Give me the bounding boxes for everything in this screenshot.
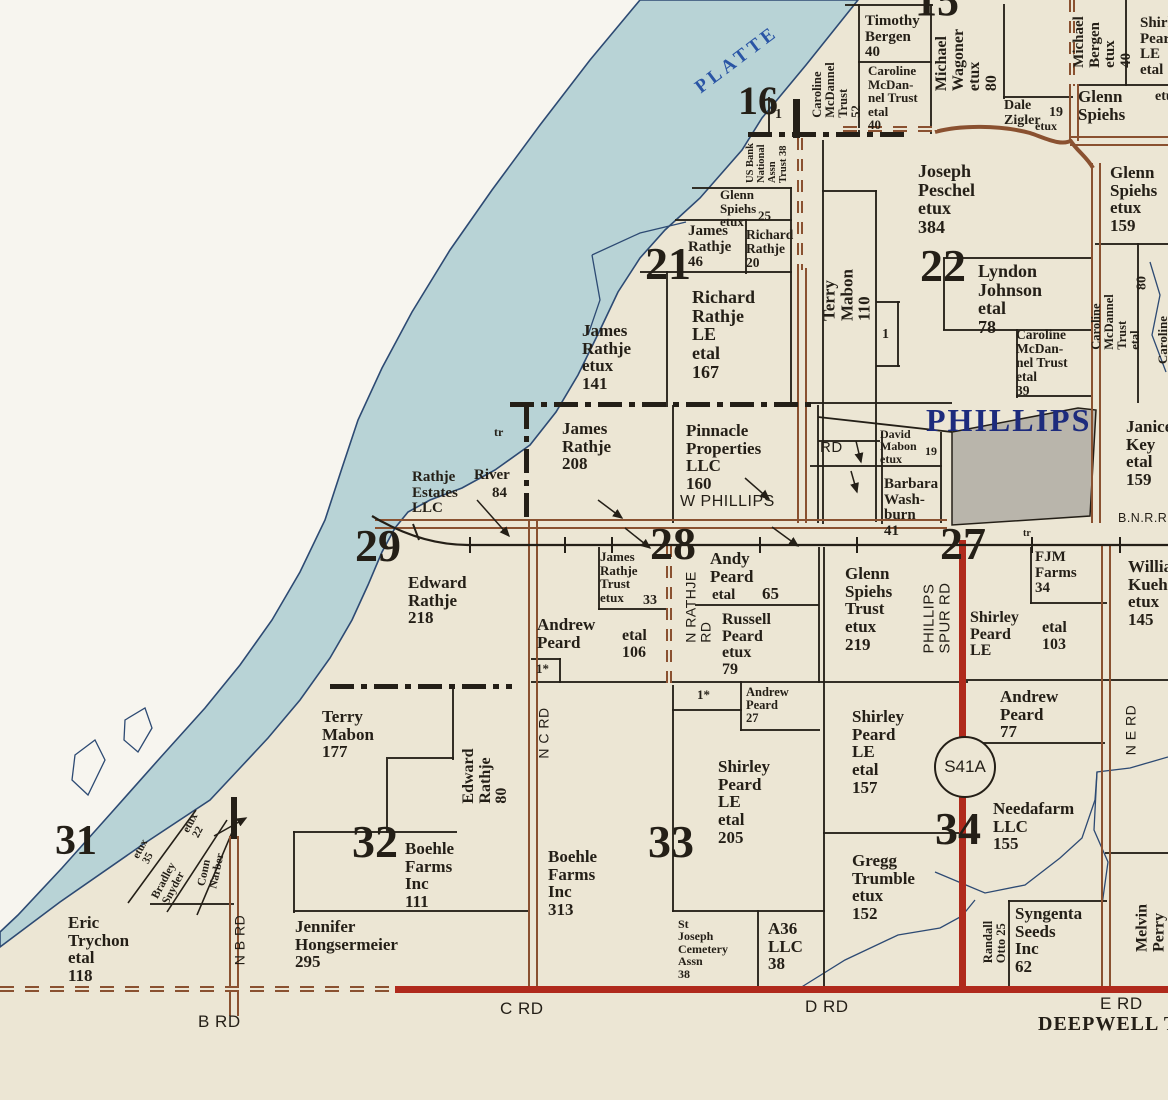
river-island <box>72 740 105 795</box>
map-label: Michael Wagoner etux 80 <box>934 29 1001 91</box>
parcel-line <box>666 271 668 407</box>
map-label: 33 <box>643 594 657 609</box>
section-number-28: 28 <box>650 520 696 568</box>
parcel-line <box>150 903 234 905</box>
map-label: etal <box>712 588 735 604</box>
section-number-15: 15 <box>915 0 959 24</box>
map-label: N C RD <box>537 707 552 758</box>
map-label: Barbara Wash- burn 41 <box>884 477 938 539</box>
parcel-line <box>672 910 825 912</box>
map-label: Rathje Estates LLC <box>412 470 458 517</box>
section-number-33: 33 <box>648 818 694 866</box>
map-label: Caroline McDan- nel Trust etal 39 <box>1016 328 1068 398</box>
section-number-22: 22 <box>920 242 966 290</box>
map-label: 1* <box>697 688 710 702</box>
township-boundary-bar <box>231 797 237 839</box>
map-label: etux <box>1155 90 1168 105</box>
parcel-line <box>388 757 454 759</box>
map-label: 19 <box>925 445 937 457</box>
map-label: 1 <box>882 328 889 343</box>
map-label: Terry Mabon 110 <box>820 269 873 321</box>
parcel-line <box>293 831 295 913</box>
page-margin <box>0 0 640 932</box>
section-number-31: 31 <box>55 820 97 864</box>
map-label: Boehle Farms Inc 313 <box>548 848 597 919</box>
parcel-line <box>963 679 1168 681</box>
map-label: Joseph Peschel etux 384 <box>918 162 975 237</box>
map-label: FJM Farms 34 <box>1035 550 1077 597</box>
map-label: Lyndon Johnson etal 78 <box>978 262 1042 337</box>
map-label: Melvin Perry <box>1134 904 1167 952</box>
map-label: Randall Otto 25 <box>982 921 1008 963</box>
township-boundary <box>524 405 529 523</box>
map-label: PHILLIPS SPUR RD <box>921 582 952 653</box>
map-label: 25 <box>758 209 771 223</box>
map-label: Edward Rathje 80 <box>461 748 511 803</box>
parcel-line <box>790 187 792 405</box>
map-label: N E RD <box>1124 705 1139 755</box>
map-label: Shirley Peard LE etal 205 <box>718 758 770 846</box>
map-label: William Kuehner etux 145 <box>1128 558 1168 629</box>
map-label: Pinnacle Properties LLC 160 <box>686 422 761 493</box>
parcel-line <box>757 910 759 993</box>
parcel-line <box>559 658 561 683</box>
map-label: N RATHJE RD <box>683 571 712 642</box>
map-label: 80 <box>1136 276 1151 290</box>
parcel-line <box>740 729 820 731</box>
map-label: Caroline McDan- nel Trust etal 40 <box>868 64 918 132</box>
parcel-line <box>672 685 674 912</box>
plat-map: S41A PLATTEPHILLIPSB.N.R.R.1516212227282… <box>0 0 1168 1100</box>
map-label: Caroline McDannel Trust 52 <box>811 62 863 118</box>
map-label: tr <box>494 426 503 438</box>
section-number-16: 16 <box>738 80 778 122</box>
map-label: Glenn Spiehs <box>1078 88 1125 123</box>
parcel-line <box>875 190 877 522</box>
parcel-line <box>1030 547 1032 604</box>
parcel-line <box>810 465 942 467</box>
parcel-line <box>822 190 877 192</box>
map-label: 84 <box>492 486 507 502</box>
parcel-line <box>672 405 674 523</box>
map-label: Russell Peard etux 79 <box>722 612 771 679</box>
parcel-line <box>823 547 825 993</box>
map-label: Timothy Bergen 40 <box>865 14 920 61</box>
map-label: etal 106 <box>622 628 647 661</box>
map-label: David Mabon etux <box>880 428 917 465</box>
parcel-line <box>1105 852 1168 854</box>
road-red <box>395 986 1168 993</box>
map-label: Glenn Spiehs etux 159 <box>1110 164 1157 235</box>
section-number-21: 21 <box>645 240 691 288</box>
section-number-32: 32 <box>352 818 398 866</box>
map-label: Shirley Peard LE etal 157 <box>852 708 904 796</box>
map-label: Boehle Farms Inc 111 <box>405 840 454 911</box>
map-label: River <box>474 468 510 484</box>
township-boundary <box>510 402 818 407</box>
town-name-phillips: PHILLIPS <box>926 404 1091 437</box>
road-label-b-rd: B RD <box>198 1013 241 1031</box>
map-label: Andrew Peard 77 <box>1000 688 1058 741</box>
map-label: Eric Trychon etal 118 <box>68 914 129 985</box>
section-number-27: 27 <box>940 520 986 568</box>
road-brown <box>797 138 803 270</box>
map-label: Andrew Peard 27 <box>746 686 789 725</box>
parcel-line <box>1030 602 1107 604</box>
map-label: Gregg Trumble etux 152 <box>852 852 915 923</box>
map-label: N B RD <box>233 915 248 965</box>
parcel-line <box>598 608 670 610</box>
river-island <box>124 708 152 752</box>
road-label-e-rd: E RD <box>1100 995 1143 1013</box>
road-brown <box>1070 136 1168 146</box>
map-label: Shirley Peard LE <box>970 610 1019 660</box>
map-label: Terry Mabon 177 <box>322 708 374 761</box>
parcel-line <box>1008 900 1107 902</box>
map-label: Caroline McDannel Trust etal <box>1090 294 1142 350</box>
map-label: Janice Key etal 159 <box>1126 418 1168 489</box>
section-number-34: 34 <box>935 805 981 853</box>
map-label: Caroline <box>1156 316 1168 364</box>
map-label: A36 LLC 38 <box>768 920 803 973</box>
parcel-line <box>452 685 454 760</box>
parcel-line <box>940 432 942 523</box>
parcel-line <box>1078 84 1168 86</box>
map-label: Andrew Peard <box>537 616 595 651</box>
parcel-line <box>740 681 742 731</box>
parcel-line <box>531 681 968 683</box>
map-label: Bradley Snyder <box>150 861 189 907</box>
road-label-c-rd: C RD <box>500 1000 544 1018</box>
parcel-line <box>672 709 742 711</box>
map-label: Andy Peard <box>710 550 753 585</box>
parcel-line <box>1003 4 1005 99</box>
map-label: 1* <box>536 662 549 676</box>
map-label: 1 <box>775 108 782 123</box>
map-label: James Rathje etux 141 <box>582 322 631 393</box>
map-label: W PHILLIPS <box>680 494 775 511</box>
map-label: Jennifer Hongsermeier 295 <box>295 918 398 971</box>
map-label: James Rathje 208 <box>562 420 611 473</box>
map-label: Syngenta Seeds Inc 62 <box>1015 905 1082 976</box>
map-label: Glenn Spiehs Trust etux 219 <box>845 565 892 653</box>
map-label: Michael Bergen etux 40 <box>1072 16 1134 68</box>
map-label: James Rathje Trust etux <box>600 550 638 604</box>
parcel-line <box>817 405 819 523</box>
map-label: etux 22 <box>181 812 211 841</box>
map-label: etal 103 <box>1042 620 1067 653</box>
parcel-line <box>695 604 819 606</box>
township-boundary <box>330 684 512 689</box>
road-brown <box>1101 545 1111 988</box>
map-label: Shirley Peard LE etal <box>1140 16 1168 78</box>
road-brown <box>0 986 397 992</box>
map-label: 65 <box>762 585 779 603</box>
section-number-29: 29 <box>355 522 401 570</box>
map-label: Richard Rathje 20 <box>746 228 793 270</box>
railroad-label: B.N.R.R. <box>1118 512 1168 525</box>
township-boundary <box>748 132 906 137</box>
map-label: US Bank National Assn Trust 38 <box>746 143 790 183</box>
map-label: Needafarm LLC 155 <box>993 800 1074 853</box>
highway-shield-s41a: S41A <box>934 736 996 798</box>
parcel-line <box>1095 243 1168 245</box>
map-label: Conn Narber <box>197 850 228 890</box>
township-label: DEEPWELL TW <box>1038 1014 1168 1035</box>
road-label-d-rd: D RD <box>805 998 849 1016</box>
road-brown <box>797 268 807 523</box>
map-label: Edward Rathje 218 <box>408 574 467 627</box>
parcel-line <box>1008 900 1010 993</box>
map-label: St Joseph Cemetery Assn 38 <box>678 918 728 980</box>
map-label: RD <box>820 440 843 456</box>
map-label: etux <box>1035 120 1057 132</box>
parcel-line <box>818 547 820 683</box>
map-label: etux 35 <box>131 838 161 867</box>
parcel-line <box>897 301 899 367</box>
map-label: Richard Rathje LE etal 167 <box>692 288 755 382</box>
map-label: James Rathje 46 <box>688 224 731 271</box>
map-label: tr <box>1023 529 1031 539</box>
